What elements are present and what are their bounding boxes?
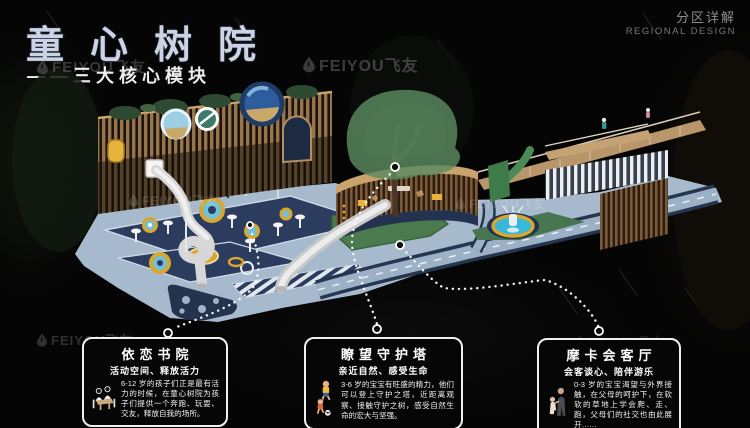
arch-doorway (283, 116, 311, 162)
module-card-book-academy: 依恋书院 活动空间、释放活力 6-12 岁的孩子们正是最有活力的时候，在童心树院… (82, 337, 228, 427)
module-title: 瞭望守护塔 (313, 344, 454, 363)
module-card-mocha-lounge: 摩卡会客厅 会客谈心、陪伴游乐 0-3 岁的宝宝渴望与外界接触，在父母的呵护下，… (537, 338, 681, 428)
timber-wall (600, 178, 668, 250)
wall-lamp (108, 140, 124, 162)
module-tagline: 活动空间、释放活力 (91, 364, 219, 377)
module-tagline: 会客谈心、陪伴游乐 (546, 365, 672, 378)
soccer-children-icon (313, 379, 337, 422)
module-card-watch-tower: 瞭望守护塔 亲近自然、感受生命 3-6 岁的宝宝有旺盛的精力，他 (304, 337, 463, 428)
module-description: 6-12 岁的孩子们正是最有活力的时候，在童心树院为孩子们提供一个奔跑、玩耍、交… (121, 379, 219, 419)
module-description: 3-6 岁的宝宝有旺盛的精力，他们可以登上守护之塔，近距离观察、接触守护之树，感… (341, 380, 454, 420)
module-title: 摩卡会客厅 (546, 345, 672, 364)
slide: 童心树院 ——三大核心模块 分区详解 REGIONAL DESIGN (0, 0, 750, 428)
module-description: 0-3 岁的宝宝渴望与外界接触，在父母的呵护下，在软软的草地上学会爬、走、跑，父… (574, 380, 672, 428)
module-title: 依恋书院 (91, 344, 219, 363)
parent-child-icon (546, 386, 570, 425)
reading-children-icon (91, 381, 117, 418)
module-tagline: 亲近自然、感受生命 (313, 364, 454, 377)
